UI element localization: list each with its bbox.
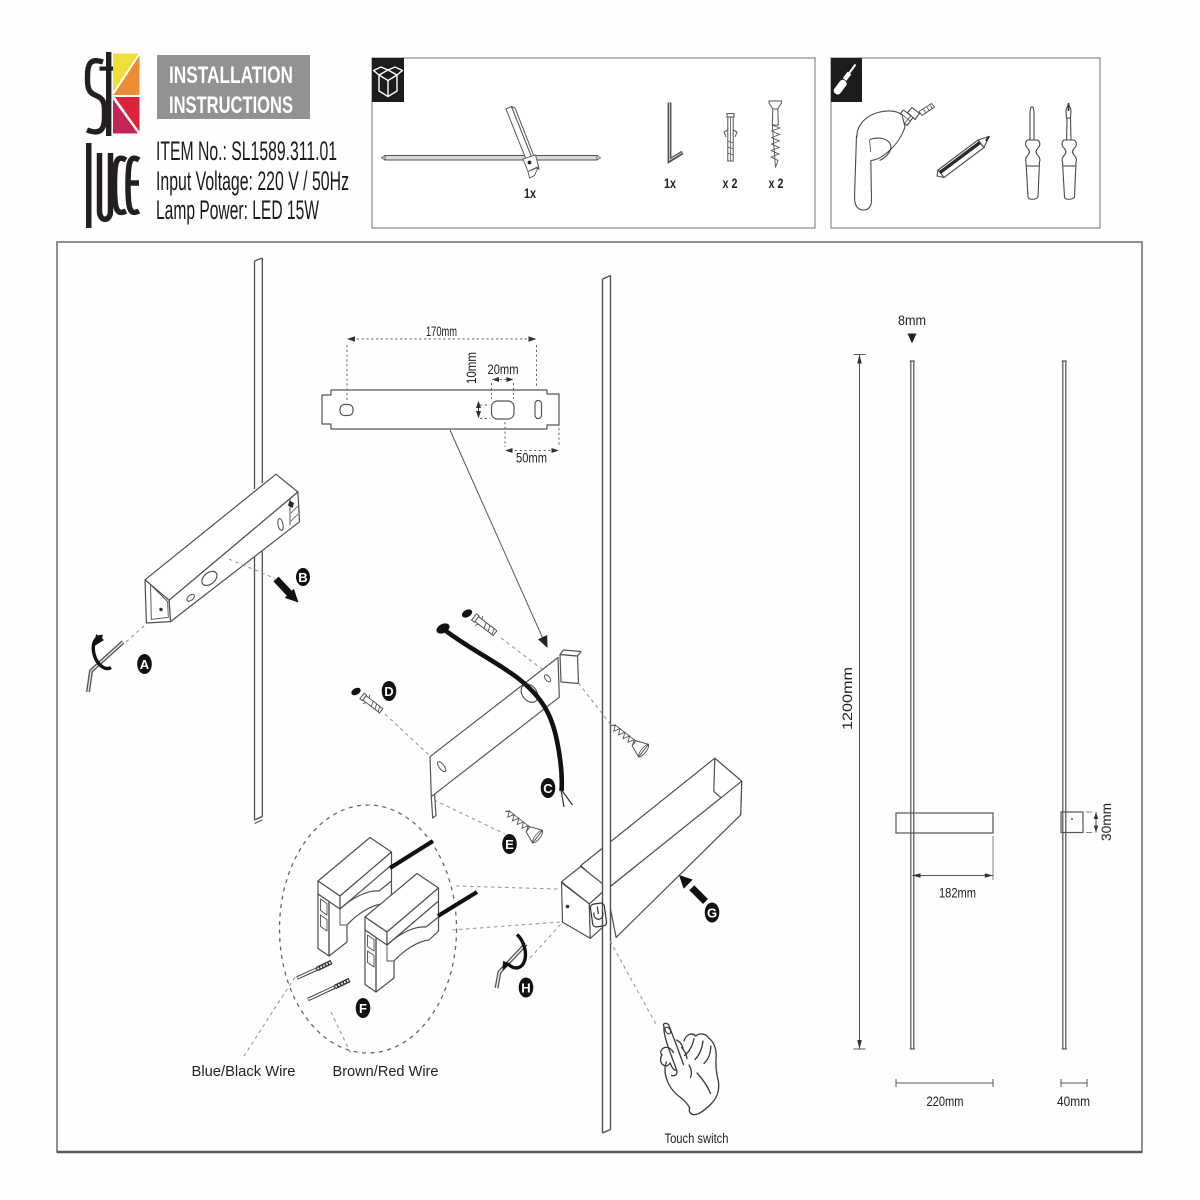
svg-text:50mm: 50mm [516, 451, 547, 466]
svg-text:1200mm: 1200mm [839, 667, 855, 730]
svg-text:1x: 1x [524, 185, 536, 201]
svg-text:220mm: 220mm [927, 1093, 964, 1109]
svg-text:170mm: 170mm [426, 324, 457, 339]
svg-text:x 2: x 2 [723, 175, 738, 191]
svg-text:ITEM No.: SL1589.311.01: ITEM No.: SL1589.311.01 [156, 136, 337, 166]
svg-text:182mm: 182mm [939, 885, 976, 901]
svg-text:D: D [384, 684, 393, 699]
svg-text:G: G [707, 906, 717, 921]
svg-text:Touch switch: Touch switch [665, 1131, 729, 1146]
svg-text:C: C [543, 781, 553, 796]
svg-text:INSTALLATION: INSTALLATION [169, 62, 293, 89]
svg-text:F: F [359, 1001, 367, 1016]
svg-text:x 2: x 2 [769, 175, 784, 191]
svg-text:1x: 1x [664, 175, 676, 191]
svg-text:30mm: 30mm [1099, 803, 1114, 841]
svg-text:Lamp Power: LED 15W: Lamp Power: LED 15W [156, 195, 319, 225]
svg-text:Blue/Black Wire: Blue/Black Wire [192, 1063, 296, 1080]
svg-text:B: B [298, 570, 307, 585]
svg-text:40mm: 40mm [1057, 1093, 1090, 1109]
svg-text:E: E [505, 837, 514, 852]
svg-text:A: A [140, 657, 150, 672]
svg-text:H: H [521, 981, 530, 996]
svg-text:Brown/Red Wire: Brown/Red Wire [333, 1063, 439, 1080]
svg-text:Input Voltage: 220 V / 50Hz: Input Voltage: 220 V / 50Hz [156, 166, 349, 196]
svg-text:20mm: 20mm [488, 362, 519, 377]
svg-text:8mm: 8mm [898, 313, 926, 328]
svg-text:10mm: 10mm [464, 352, 479, 384]
svg-text:INSTRUCTIONS: INSTRUCTIONS [169, 92, 293, 119]
